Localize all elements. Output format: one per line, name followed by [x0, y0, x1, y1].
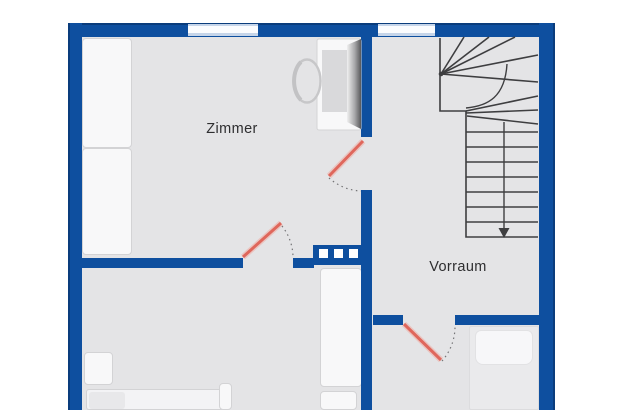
room-label-vorraum: Vorraum [408, 259, 508, 275]
chimney-square-3 [349, 249, 358, 258]
wall-zimmer-south-stub [293, 258, 314, 268]
wall-exterior-left [68, 23, 82, 410]
pillow-bottom-right [475, 330, 533, 365]
chimney-block [313, 245, 363, 265]
chimney-square-2 [334, 249, 343, 258]
wardrobe-lower-right-2 [320, 391, 357, 410]
window-zimmer-glass [188, 26, 258, 33]
wall-vorraum-south-left [373, 315, 403, 325]
small-cabinet [219, 383, 232, 410]
wall-vorraum-south-right [455, 315, 539, 325]
pillow-lower-left [89, 392, 125, 409]
wardrobe-zimmer-bottom [82, 148, 132, 255]
chimney-square-1 [319, 249, 328, 258]
nightstand [84, 352, 113, 385]
floor-plan: Zimmer Vorraum [0, 0, 620, 410]
window-vorraum [378, 24, 435, 36]
wardrobe-lower-right-1 [320, 268, 362, 387]
bed-lower-left [86, 389, 224, 410]
wardrobe-zimmer-top [82, 38, 132, 148]
wall-exterior-top [68, 23, 555, 37]
window-zimmer [188, 24, 258, 36]
wall-divider-upper [361, 37, 372, 137]
wall-divider-lower [361, 190, 372, 410]
wall-exterior-right [539, 23, 555, 410]
room-label-zimmer: Zimmer [182, 121, 282, 137]
wall-zimmer-south [82, 258, 243, 268]
window-vorraum-glass [378, 26, 435, 33]
